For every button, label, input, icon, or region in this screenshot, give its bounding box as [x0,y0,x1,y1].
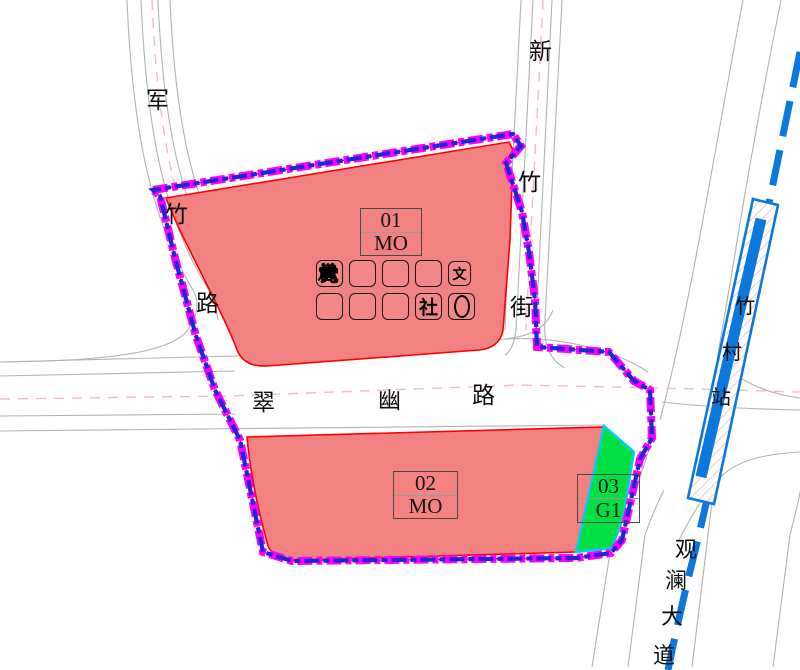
oval-shape [454,295,470,318]
parcel-01-label: 01 MO [360,208,422,256]
planning-map: 军 竹 路 新 竹 街 翠 幽 路 竹 村 站 观 澜 大 道 01 MO 02… [0,0,800,670]
parcel-01-number: 01 [361,209,421,233]
bus-shelter-icon [349,260,376,287]
community-glyph: 社 [419,293,438,320]
culture-glyph: 文 [453,264,467,284]
road-label-junzhu-1: 军 [146,89,169,112]
road-label-xinzhu-1: 新 [529,40,552,63]
road-label-junzhu-2: 竹 [165,203,188,226]
public-toilet-icon [349,293,376,320]
recycling-station-icon [415,260,442,287]
parcel-03-code: G1 [578,499,639,522]
community-center-icon: 社 [415,293,442,320]
oval-marker-icon [448,293,475,320]
facility-icon-grid: 党 文 [316,260,475,326]
station-label-2: 村 [722,343,742,363]
road-label-cuiyou-1: 翠 [252,391,275,414]
road-label-guanlan-3: 大 [661,606,683,628]
parcel-02-number: 02 [394,472,457,496]
parcel-02-code: MO [394,496,457,519]
road-label-guanlan-1: 观 [675,539,697,561]
road-label-junzhu-3: 路 [196,292,219,315]
station-label-3: 站 [711,388,731,408]
road-label-cuiyou-2: 幽 [378,389,401,412]
substation-icon [382,293,409,320]
parcel-03-label: 03 G1 [577,474,640,523]
road-label-guanlan-4: 道 [653,645,675,667]
parcel-01-code: MO [361,233,421,256]
culture-facility-icon: 文 [448,261,471,286]
parcel-01-polygon [166,142,513,366]
road-label-xinzhu-3: 街 [510,296,533,319]
station-label-1: 竹 [735,297,755,317]
pump-station-icon [316,293,343,320]
road-label-cuiyou-3: 路 [472,384,495,407]
road-label-guanlan-2: 澜 [665,570,687,592]
parcel-03-number: 03 [578,475,639,499]
boat-dock-icon [382,260,409,287]
road-label-xinzhu-2: 竹 [518,171,541,194]
facility-icon-row-2: 社 [316,293,475,320]
parcel-02-label: 02 MO [393,471,458,519]
